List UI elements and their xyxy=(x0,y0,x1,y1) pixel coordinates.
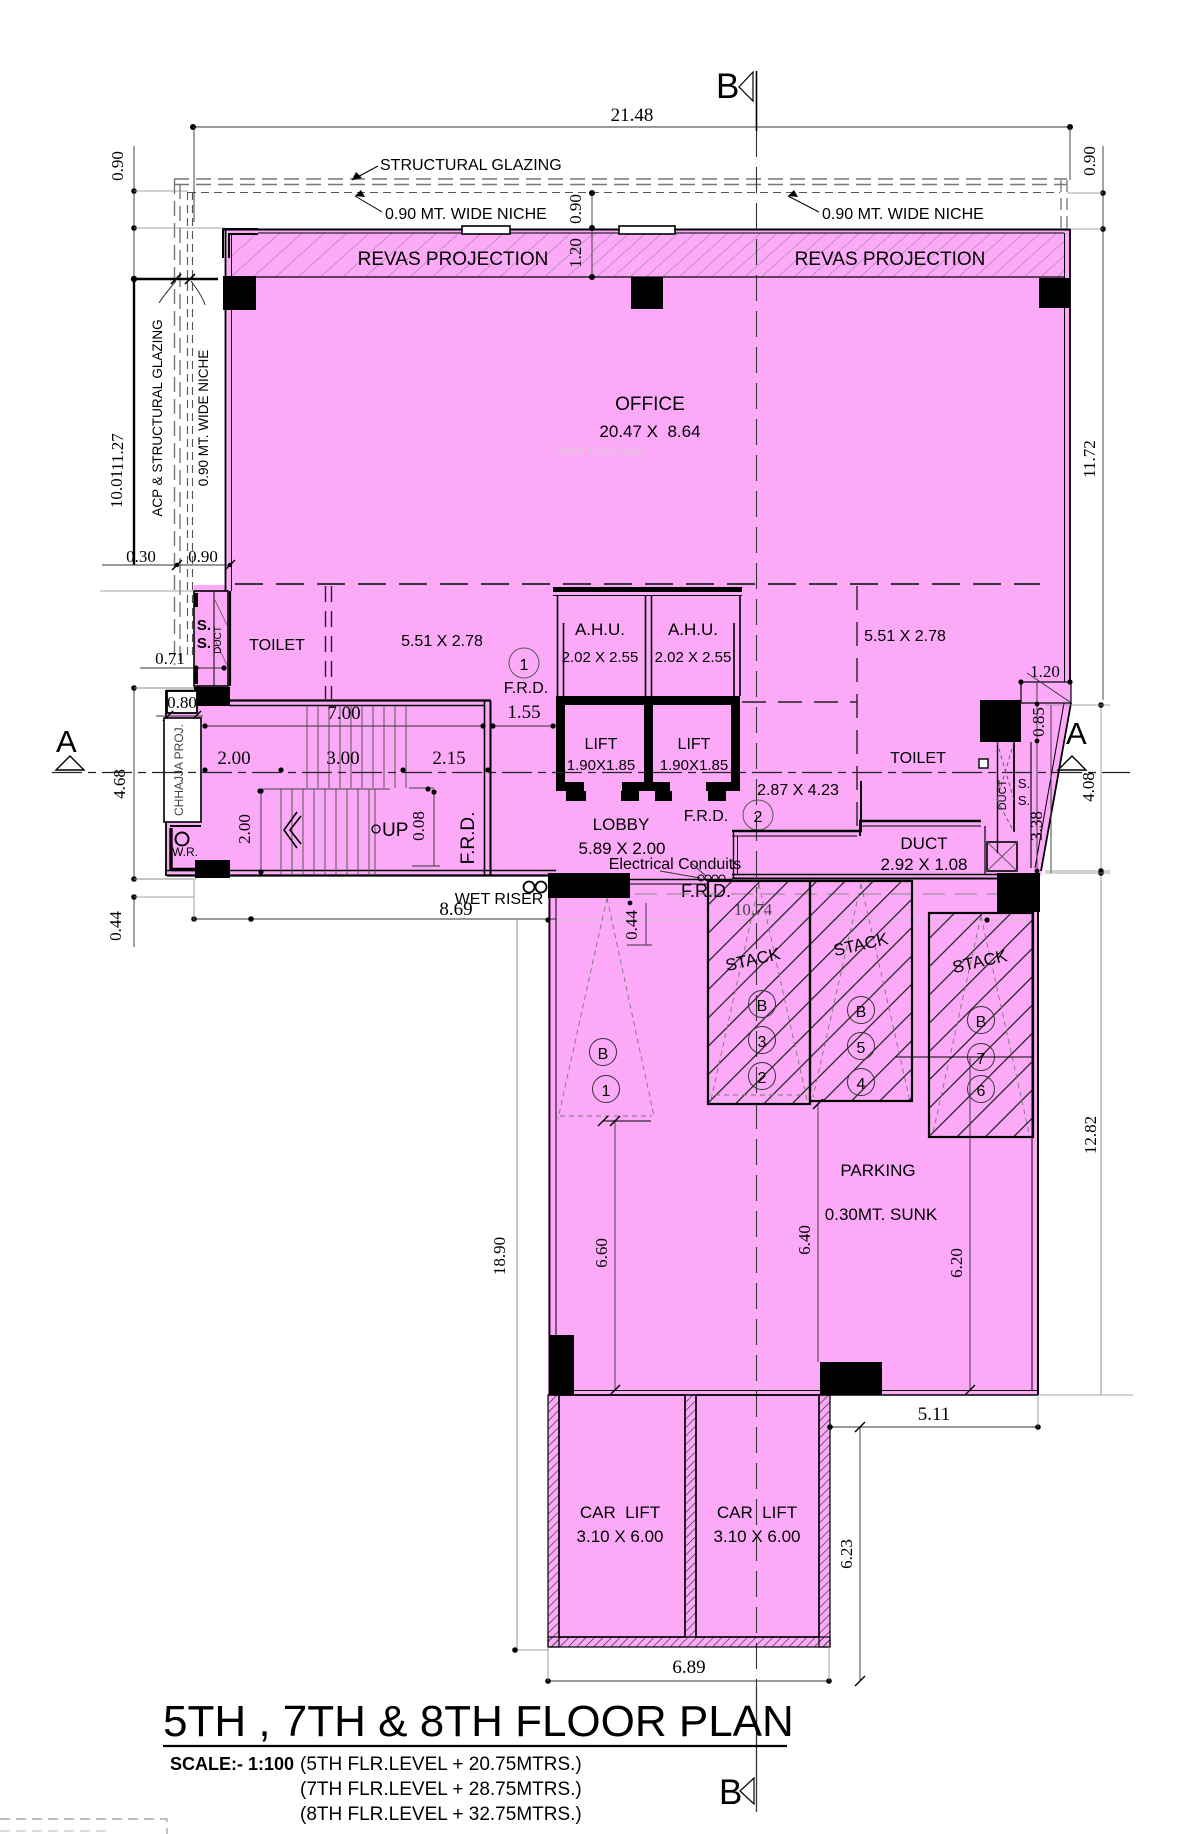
svg-text:OFFICE: OFFICE xyxy=(615,394,685,415)
svg-text:B: B xyxy=(716,67,739,106)
svg-text:B: B xyxy=(976,1014,987,1031)
svg-text:LIFT: LIFT xyxy=(678,736,711,753)
svg-text:TOILET: TOILET xyxy=(890,750,946,767)
svg-text:6.60: 6.60 xyxy=(592,1238,611,1268)
svg-text:W.R.: W.R. xyxy=(172,845,198,859)
svg-text:S.: S. xyxy=(1018,776,1030,791)
svg-text:6.23: 6.23 xyxy=(837,1539,856,1569)
svg-text:1.90X1.85: 1.90X1.85 xyxy=(567,757,635,774)
svg-text:5: 5 xyxy=(857,1040,866,1057)
svg-text:0.71: 0.71 xyxy=(155,649,185,668)
svg-text:DUCT: DUCT xyxy=(997,779,1009,810)
svg-text:SCALE:- 1:100: SCALE:- 1:100 xyxy=(170,1754,294,1774)
svg-text:CAR LIFT: CAR LIFT xyxy=(580,1503,660,1522)
svg-text:DUCT: DUCT xyxy=(213,626,224,654)
svg-text:B: B xyxy=(719,1773,742,1812)
svg-text:0.90: 0.90 xyxy=(188,547,218,566)
svg-text:S.: S. xyxy=(197,617,211,634)
svg-text:B: B xyxy=(856,1004,867,1021)
svg-text:Electrical Conduits: Electrical Conduits xyxy=(609,856,742,873)
svg-text:LIFT: LIFT xyxy=(585,736,618,753)
svg-text:0.90: 0.90 xyxy=(108,151,127,181)
svg-text:STRUCTURAL GLAZING: STRUCTURAL GLAZING xyxy=(380,157,562,174)
svg-text:A: A xyxy=(56,724,77,759)
svg-text:(8TH FLR.LEVEL + 32.75MTRS.): (8TH FLR.LEVEL + 32.75MTRS.) xyxy=(300,1804,582,1825)
svg-text:11.72: 11.72 xyxy=(1080,440,1099,478)
svg-text:0.85: 0.85 xyxy=(1029,707,1048,737)
svg-text:A: A xyxy=(1066,716,1087,751)
svg-text:F.R.D.: F.R.D. xyxy=(458,812,479,865)
svg-text:(5TH FLR.LEVEL + 20.75MTRS.): (5TH FLR.LEVEL + 20.75MTRS.) xyxy=(300,1754,582,1775)
svg-text:10.01: 10.01 xyxy=(107,470,126,508)
svg-text:6.20: 6.20 xyxy=(947,1248,966,1278)
svg-text:CHHAJJA PROJ.: CHHAJJA PROJ. xyxy=(172,724,186,816)
svg-text:PARKING: PARKING xyxy=(840,1161,915,1180)
svg-text:0.90 MT. WIDE NICHE: 0.90 MT. WIDE NICHE xyxy=(385,206,547,223)
svg-text:4.08: 4.08 xyxy=(1079,772,1098,802)
svg-text:3.38: 3.38 xyxy=(1027,811,1046,841)
svg-text:2.92 X 1.08: 2.92 X 1.08 xyxy=(881,855,968,874)
svg-text:6: 6 xyxy=(977,1083,986,1100)
svg-text:5.51 X 2.78: 5.51 X 2.78 xyxy=(401,633,483,650)
svg-text:5.11: 5.11 xyxy=(918,1404,951,1425)
svg-text:18.90: 18.90 xyxy=(490,1237,509,1275)
svg-text:3.00: 3.00 xyxy=(326,748,359,769)
svg-text:TOILET: TOILET xyxy=(249,637,305,654)
svg-text:7.00: 7.00 xyxy=(327,703,360,724)
svg-text:1: 1 xyxy=(520,657,529,674)
svg-text:REVAS PROJECTION: REVAS PROJECTION xyxy=(795,249,986,270)
svg-text:6.40: 6.40 xyxy=(795,1225,814,1255)
svg-text:5TH , 7TH & 8TH FLOOR PLAN: 5TH , 7TH & 8TH FLOOR PLAN xyxy=(163,1697,794,1746)
svg-text:B: B xyxy=(757,998,768,1015)
svg-text:REVAS PROJECTION: REVAS PROJECTION xyxy=(358,249,549,270)
svg-text:20.47 X 8.64: 20.47 X 8.64 xyxy=(599,422,700,441)
svg-text:6.89: 6.89 xyxy=(672,1657,705,1678)
svg-text:A.H.U.: A.H.U. xyxy=(575,620,625,639)
svg-text:0.90: 0.90 xyxy=(566,194,585,224)
svg-text:PROPTIGER.com: PROPTIGER.com xyxy=(556,446,645,458)
svg-text:1.55: 1.55 xyxy=(507,702,540,723)
svg-text:2.00: 2.00 xyxy=(235,814,254,844)
svg-text:3.10 X 6.00: 3.10 X 6.00 xyxy=(577,1527,664,1546)
svg-text:11.27: 11.27 xyxy=(108,433,127,471)
svg-text:CAR LIFT: CAR LIFT xyxy=(717,1503,797,1522)
svg-text:1.90X1.85: 1.90X1.85 xyxy=(660,757,728,774)
svg-text:F.R.D.: F.R.D. xyxy=(684,808,728,825)
svg-text:1: 1 xyxy=(602,1083,611,1100)
svg-text:LOBBY: LOBBY xyxy=(593,815,650,834)
svg-text:3.10 X 6.00: 3.10 X 6.00 xyxy=(714,1527,801,1546)
svg-text:B: B xyxy=(598,1046,609,1063)
svg-text:ACP & STRUCTURAL GLAZING: ACP & STRUCTURAL GLAZING xyxy=(150,319,165,516)
svg-text:2.02 X 2.55: 2.02 X 2.55 xyxy=(562,649,639,666)
svg-text:0.80: 0.80 xyxy=(167,693,197,712)
svg-text:WET RISER: WET RISER xyxy=(455,891,544,908)
svg-text:DUCT: DUCT xyxy=(900,834,947,853)
svg-text:3: 3 xyxy=(758,1034,767,1051)
svg-text:(7TH FLR.LEVEL + 28.75MTRS.): (7TH FLR.LEVEL + 28.75MTRS.) xyxy=(300,1779,582,1800)
svg-text:0.90: 0.90 xyxy=(1080,146,1099,176)
svg-text:0.30: 0.30 xyxy=(126,547,156,566)
svg-text:1.20: 1.20 xyxy=(566,238,585,268)
svg-text:0.30MT. SUNK: 0.30MT. SUNK xyxy=(825,1205,938,1224)
svg-text:S.: S. xyxy=(1018,793,1030,808)
svg-text:4.68: 4.68 xyxy=(110,769,129,799)
svg-text:2.00: 2.00 xyxy=(217,748,250,769)
svg-text:0.44: 0.44 xyxy=(106,911,125,941)
svg-text:A.H.U.: A.H.U. xyxy=(668,620,718,639)
svg-text:5.51 X 2.78: 5.51 X 2.78 xyxy=(864,628,946,645)
svg-text:2: 2 xyxy=(754,809,763,826)
svg-text:2.15: 2.15 xyxy=(432,748,465,769)
svg-text:0.44: 0.44 xyxy=(622,910,641,940)
svg-text:21.48: 21.48 xyxy=(611,105,654,126)
svg-text:2: 2 xyxy=(758,1070,767,1087)
svg-text:UP: UP xyxy=(382,820,408,841)
svg-text:S.: S. xyxy=(197,635,211,652)
svg-text:0.08: 0.08 xyxy=(409,811,428,841)
svg-text:F.R.D.: F.R.D. xyxy=(504,680,548,697)
svg-text:2.02 X 2.55: 2.02 X 2.55 xyxy=(655,649,732,666)
svg-text:4: 4 xyxy=(857,1076,866,1093)
svg-text:7: 7 xyxy=(977,1051,986,1068)
svg-text:0.90 MT. WIDE NICHE: 0.90 MT. WIDE NICHE xyxy=(196,350,211,487)
svg-text:2.87 X 4.23: 2.87 X 4.23 xyxy=(757,782,839,799)
svg-text:12.82: 12.82 xyxy=(1081,1116,1100,1154)
svg-text:0.90 MT. WIDE NICHE: 0.90 MT. WIDE NICHE xyxy=(822,206,984,223)
